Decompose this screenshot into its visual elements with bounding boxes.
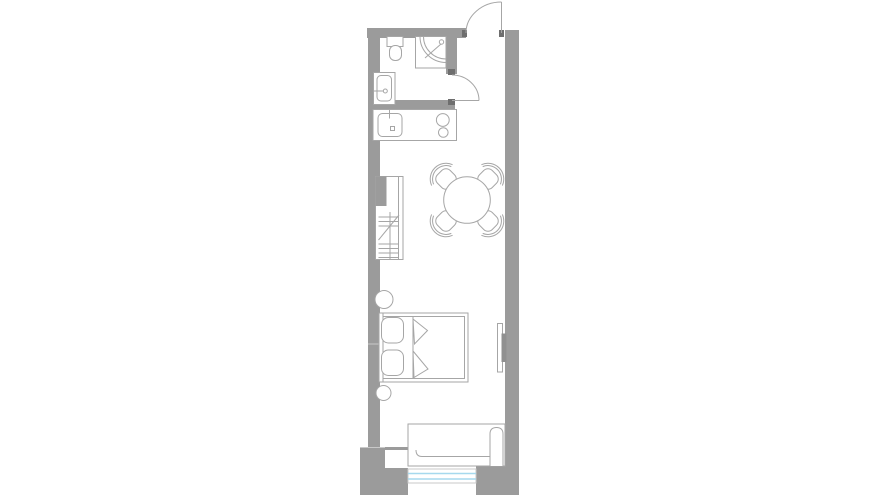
corner-shower xyxy=(416,37,447,69)
wardrobe-column xyxy=(376,177,387,207)
entry-door xyxy=(466,2,502,33)
window xyxy=(408,469,476,483)
kitchen-sink-drain xyxy=(391,127,395,131)
wall-niche xyxy=(385,450,408,468)
toilet xyxy=(387,37,403,61)
cooktop-burner-large xyxy=(436,114,449,127)
wardrobe xyxy=(376,177,404,260)
bathroom-sink xyxy=(374,73,396,105)
sofa-armrest xyxy=(490,428,503,467)
wall-block-bottom-right xyxy=(476,465,519,495)
bathroom-sink-faucet xyxy=(383,89,387,93)
bathroom-door-swing-arc xyxy=(452,75,479,101)
dining-table xyxy=(444,177,491,224)
floor-plan-canvas xyxy=(0,0,880,495)
shower-head-icon xyxy=(439,40,443,44)
studio-floor-plan xyxy=(0,0,880,495)
bath-jamb-bottom xyxy=(448,99,455,105)
toilet-bowl xyxy=(390,46,402,61)
kitchen-counter xyxy=(373,110,457,141)
wall-right xyxy=(505,30,519,466)
bathroom-sink-basin xyxy=(377,76,392,102)
dining-set xyxy=(424,157,509,242)
bathroom-door xyxy=(452,75,479,101)
wall-bathroom-divider xyxy=(446,37,457,74)
nightstand-top xyxy=(375,291,393,309)
nightstand-bottom xyxy=(376,386,391,401)
double-bed xyxy=(379,313,468,382)
bath-jamb-top xyxy=(448,69,455,75)
bed-pillow-bottom xyxy=(382,350,404,376)
sofa xyxy=(408,424,505,466)
entry-door-swing-arc xyxy=(466,2,502,33)
bed-pillow-top xyxy=(382,318,404,344)
cooktop-burner-small xyxy=(439,128,449,138)
tv-mount xyxy=(502,334,507,363)
window-frame xyxy=(408,469,476,483)
